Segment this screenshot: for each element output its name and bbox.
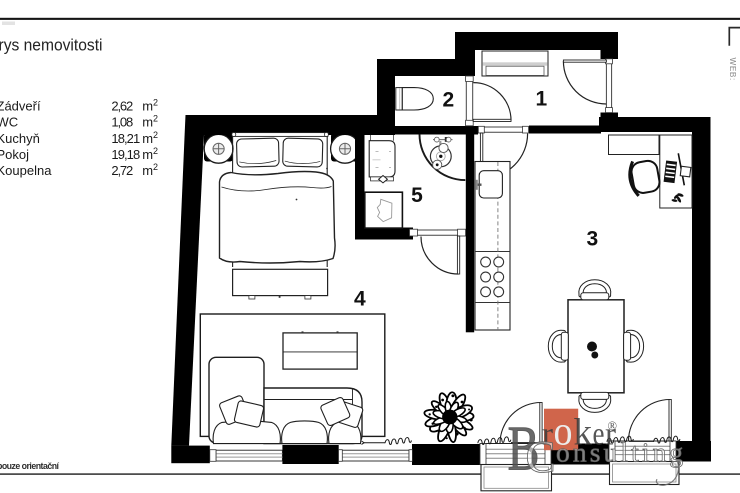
svg-text:19,18: 19,18	[111, 147, 140, 162]
svg-text:18,21: 18,21	[111, 131, 140, 146]
svg-text:2: 2	[442, 88, 454, 111]
svg-text:pouze orientační: pouze orientační	[0, 461, 60, 471]
svg-text:4: 4	[354, 287, 366, 310]
svg-text:2,72: 2,72	[111, 163, 133, 178]
svg-text:®: ®	[608, 419, 618, 433]
svg-text:Koupelna: Koupelna	[0, 163, 52, 178]
svg-text:Zádveří: Zádveří	[0, 99, 41, 114]
svg-text:1: 1	[535, 88, 547, 111]
svg-text:WEB:: WEB:	[728, 58, 737, 81]
svg-text:5: 5	[411, 184, 423, 207]
svg-text:Kuchyň: Kuchyň	[0, 131, 40, 146]
svg-text:C: C	[526, 432, 556, 482]
svg-text:2,62: 2,62	[111, 99, 133, 114]
svg-text:3: 3	[586, 228, 598, 251]
svg-text:rys nemovitosti: rys nemovitosti	[0, 36, 103, 54]
svg-text:1,08: 1,08	[111, 115, 133, 130]
svg-text:Pokoj: Pokoj	[0, 147, 29, 162]
svg-text:onsulting: onsulting	[556, 436, 686, 467]
svg-text:WC: WC	[0, 115, 18, 130]
